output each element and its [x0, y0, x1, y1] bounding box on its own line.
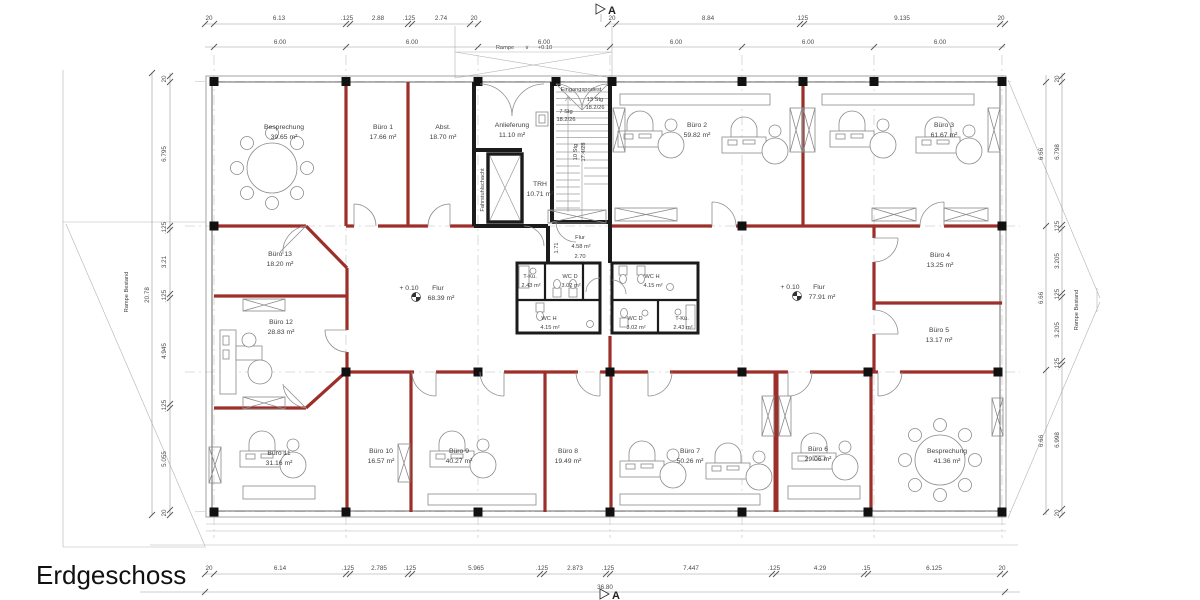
- dim-text: .125: [161, 221, 168, 234]
- dim-text: 8.84: [702, 15, 715, 22]
- workstation: [706, 443, 772, 490]
- room-label: Flur: [432, 285, 444, 292]
- dim-text: 6.14: [274, 565, 287, 572]
- room-area: 2.43 m²: [673, 325, 692, 331]
- dim-text: 6.66: [1038, 147, 1045, 160]
- dim-text: 3.205: [1054, 253, 1061, 269]
- dim-total-text: 20.78: [144, 287, 151, 303]
- room-area: 59.82 m²: [684, 132, 712, 139]
- level-marker-icon: [412, 293, 421, 302]
- dim-text: 4.29: [814, 565, 827, 572]
- dim-text: .125: [536, 565, 549, 572]
- floor-plan-drawing: Besprechung 39.65 m² Büro 1 17.66 m² Abs…: [0, 0, 1200, 600]
- room-label: WC D: [562, 274, 577, 280]
- room-area: 4.15 m²: [643, 283, 662, 289]
- room-area: 50.26 m²: [677, 458, 705, 465]
- room-label: Büro 12: [269, 319, 293, 326]
- room-area: 10.71 m²: [527, 191, 555, 198]
- section-letter: A: [608, 5, 616, 17]
- slope-symbol: ∨: [525, 45, 529, 51]
- room-area: 41.36 m²: [934, 458, 962, 465]
- dim-text: .125: [796, 15, 809, 22]
- stair-label: 7 Stg: [559, 109, 572, 115]
- room-label: TRH: [533, 181, 547, 188]
- room-area: 40.27 m²: [446, 458, 474, 465]
- dim-text: 20: [1054, 509, 1061, 517]
- room-label: Büro 4: [930, 252, 950, 259]
- room-label: Büro 5: [929, 327, 949, 334]
- room-area: 31.16 m²: [266, 460, 294, 467]
- dim-text: 2.873: [567, 565, 583, 572]
- dim-text: 9.135: [894, 15, 910, 22]
- level-marker-icon: [793, 292, 802, 301]
- room-area: 4.15 m²: [540, 325, 559, 331]
- stair-label: 10 Stg: [573, 144, 579, 160]
- room-area: 28.83 m²: [268, 329, 296, 336]
- room-label: Büro 1: [373, 124, 393, 131]
- room-area: 17.66 m²: [370, 134, 398, 141]
- counter: [822, 94, 974, 105]
- room-label: Büro 8: [558, 448, 578, 455]
- level-text: + 0.10: [399, 285, 418, 292]
- room-label: Büro 9: [449, 448, 469, 455]
- dim-text: 2.74: [435, 15, 448, 22]
- room-label: Büro 2: [687, 122, 707, 129]
- dim-text: 20: [1054, 75, 1061, 83]
- room-area: 61.67 m²: [931, 132, 959, 139]
- corridor-labels: + 0.10 Flur 68.39 m² + 0.10 Flur 77.91 m…: [399, 235, 836, 302]
- room-label: Fahrstuhlschacht: [480, 168, 486, 212]
- dim-text: 20: [997, 15, 1005, 22]
- room-area: 2.43 m²: [521, 283, 540, 289]
- core-walls-existing: [474, 82, 698, 333]
- room-area: 13.25 m²: [927, 262, 955, 269]
- room-label: Eingangspodest: [561, 87, 602, 93]
- dim-text: 6.798: [1054, 144, 1061, 160]
- counter: [620, 94, 770, 105]
- workstation: [722, 117, 788, 164]
- room-label: Abst.: [435, 124, 451, 131]
- dim-text: .125: [1054, 220, 1061, 233]
- dim-text: .15: [862, 565, 871, 572]
- dim-text: .125: [161, 399, 168, 412]
- dim-text: 4.945: [161, 343, 168, 359]
- room-label: WC H: [541, 316, 556, 322]
- room-labels: Besprechung 39.65 m² Büro 1 17.66 m² Abs…: [264, 122, 967, 467]
- desk-buero12: [220, 330, 272, 394]
- dim-text: 3.21: [161, 255, 168, 268]
- room-area: 18.70 m²: [430, 134, 458, 141]
- room-area: 4.58 m²: [571, 244, 590, 250]
- room-area: 3.02 m²: [561, 283, 580, 289]
- room-area: 29.06 m²: [805, 456, 833, 463]
- room-label: Flur: [813, 284, 825, 291]
- dim-text: 2.70: [574, 254, 585, 260]
- dim-text: 6.66: [1038, 434, 1045, 447]
- dim-text: 6.00: [274, 39, 287, 46]
- room-label: Büro 7: [680, 448, 700, 455]
- dim-text: 2.785: [371, 565, 387, 572]
- room-area: 18.20 m²: [267, 261, 295, 268]
- room-label: Büro 11: [267, 450, 291, 457]
- room-label: WC H: [644, 274, 659, 280]
- section-letter: A: [612, 590, 620, 600]
- stair-label: 13 Stg: [587, 97, 603, 103]
- workstation: [830, 111, 896, 158]
- room-area: 77.91 m²: [809, 294, 837, 301]
- dim-text: 6.66: [1038, 291, 1045, 304]
- dim-text: 6.00: [934, 39, 947, 46]
- dim-text: .125: [602, 565, 615, 572]
- dim-text: .125: [342, 565, 355, 572]
- dim-text: 20: [205, 565, 213, 572]
- dim-text: .125: [404, 565, 417, 572]
- dim-text: 6.00: [670, 39, 683, 46]
- dim-text: 1.71: [554, 242, 560, 253]
- room-label: Büro 10: [369, 448, 393, 455]
- ramp-label: Rampe: [496, 45, 514, 51]
- dim-text: .125: [403, 15, 416, 22]
- dim-text: 20: [205, 15, 213, 22]
- dim-text: 6.125: [926, 565, 942, 572]
- room-label: Büro 3: [934, 122, 954, 129]
- dim-text: .125: [1054, 357, 1061, 370]
- dim-text: 2.88: [372, 15, 385, 22]
- floor-plan-sheet: Besprechung 39.65 m² Büro 1 17.66 m² Abs…: [0, 0, 1200, 600]
- stair-label: 17.4/28: [581, 143, 587, 162]
- dim-text: 6.795: [161, 146, 168, 162]
- dim-text: 5.965: [468, 565, 484, 572]
- room-label: Flur: [575, 235, 585, 241]
- dim-text: 20: [161, 75, 168, 83]
- room-label: T-Kü.: [523, 274, 537, 280]
- room-label: Besprechung: [264, 124, 304, 131]
- dim-text: 3.205: [1054, 322, 1061, 338]
- room-label: WC D: [627, 316, 642, 322]
- room-label: Büro 13: [268, 251, 292, 258]
- dim-text: 6.00: [802, 39, 815, 46]
- dim-text: 5.055: [161, 451, 168, 467]
- level-text: + 0.10: [780, 284, 799, 291]
- dim-text: .125: [341, 15, 354, 22]
- dim-text: 6.00: [406, 39, 419, 46]
- ramp-label: Rampe Bestand: [1074, 290, 1080, 331]
- room-area: 39.65 m²: [271, 134, 299, 141]
- dim-text: 6.13: [273, 15, 286, 22]
- workstation: [618, 111, 684, 158]
- wc-labels: T-Kü. 2.43 m² WC D 3.02 m² WC H 4.15 m² …: [521, 274, 692, 331]
- dim-text: 6.998: [1054, 432, 1061, 448]
- dim-text: 7.447: [683, 565, 699, 572]
- room-area: 13.17 m²: [926, 337, 954, 344]
- room-area: 16.57 m²: [368, 458, 396, 465]
- dim-text: .125: [768, 565, 781, 572]
- dim-text: 20: [470, 15, 478, 22]
- room-area: 19.49 m²: [555, 458, 583, 465]
- room-label: Büro 6: [808, 446, 828, 453]
- room-area: 11.10 m²: [499, 132, 526, 139]
- room-area: 3.02 m²: [626, 325, 645, 331]
- stair-label: 18.2/26: [586, 105, 605, 111]
- dim-text: 6.00: [538, 39, 551, 46]
- room-label: Besprechung: [927, 448, 967, 455]
- dim-text: 20: [161, 509, 168, 517]
- drawing-title: Erdgeschoss: [36, 560, 186, 590]
- room-label: Anlieferung: [495, 122, 530, 129]
- stair-label: 18.2/26: [557, 117, 576, 123]
- ramp-label: Rampe Bestand: [124, 272, 130, 313]
- dim-text: .125: [161, 289, 168, 302]
- room-area: 68.39 m²: [428, 295, 456, 302]
- dim-text: 20: [998, 565, 1006, 572]
- dim-text: .125: [1054, 288, 1061, 301]
- room-label: T-Kü.: [675, 316, 689, 322]
